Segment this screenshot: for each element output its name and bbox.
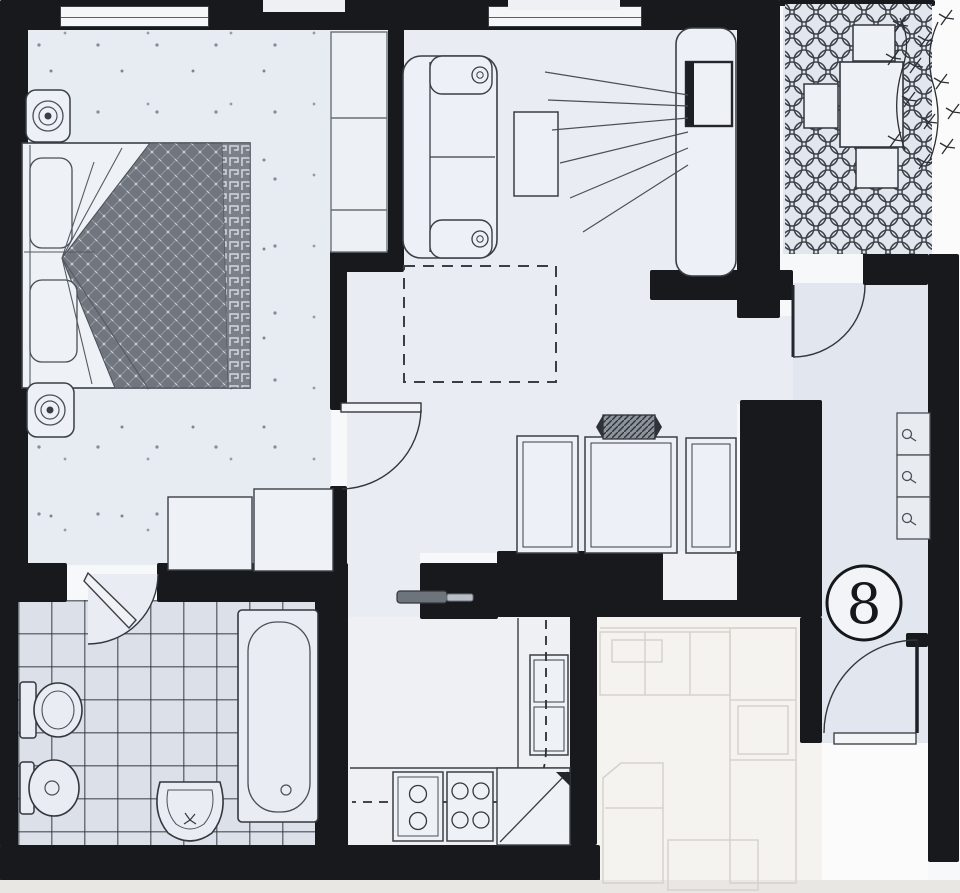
outside-top-right	[932, 0, 960, 254]
kitchen-corridor-floor	[338, 551, 420, 619]
bedroom-window	[60, 6, 209, 27]
wall-bath-kitchen	[315, 563, 348, 855]
closet-floor	[330, 28, 388, 252]
wall-balcony-bottom-right	[863, 248, 928, 285]
wall-hall-left	[740, 400, 822, 617]
wall-slit-left	[263, 0, 345, 12]
entry-landing	[822, 743, 928, 893]
kitchen-floor	[348, 617, 570, 845]
adjacent-unit-ghost-area	[597, 617, 822, 893]
bathroom-tiled-floor	[18, 600, 315, 845]
wall-balcony-top-edge	[778, 0, 935, 6]
wall-niche	[663, 551, 737, 600]
wall-right	[928, 254, 959, 862]
wall-left-lower	[0, 563, 18, 847]
wall-kitchen-stub	[420, 563, 498, 619]
living-room-floor-extension	[347, 272, 407, 553]
wall-bedroom-upper	[330, 262, 347, 410]
wall-slit-right	[508, 0, 620, 10]
wall-bottom	[0, 845, 600, 881]
bedroom-floor	[28, 28, 331, 565]
scan-edge	[0, 880, 960, 893]
wall-kitchen-right	[570, 615, 597, 845]
wall-left	[0, 0, 28, 565]
floor-plan: 8	[0, 0, 960, 893]
wall-under-tv	[650, 270, 793, 300]
wall-entry-left	[800, 617, 822, 743]
wall-entry-door-stub	[906, 633, 928, 647]
balcony-floor	[783, 4, 932, 254]
wall-bedroom-living	[388, 18, 404, 270]
wall-bathroom-top-a	[0, 563, 67, 602]
wall-bathroom-top-b	[157, 563, 338, 602]
